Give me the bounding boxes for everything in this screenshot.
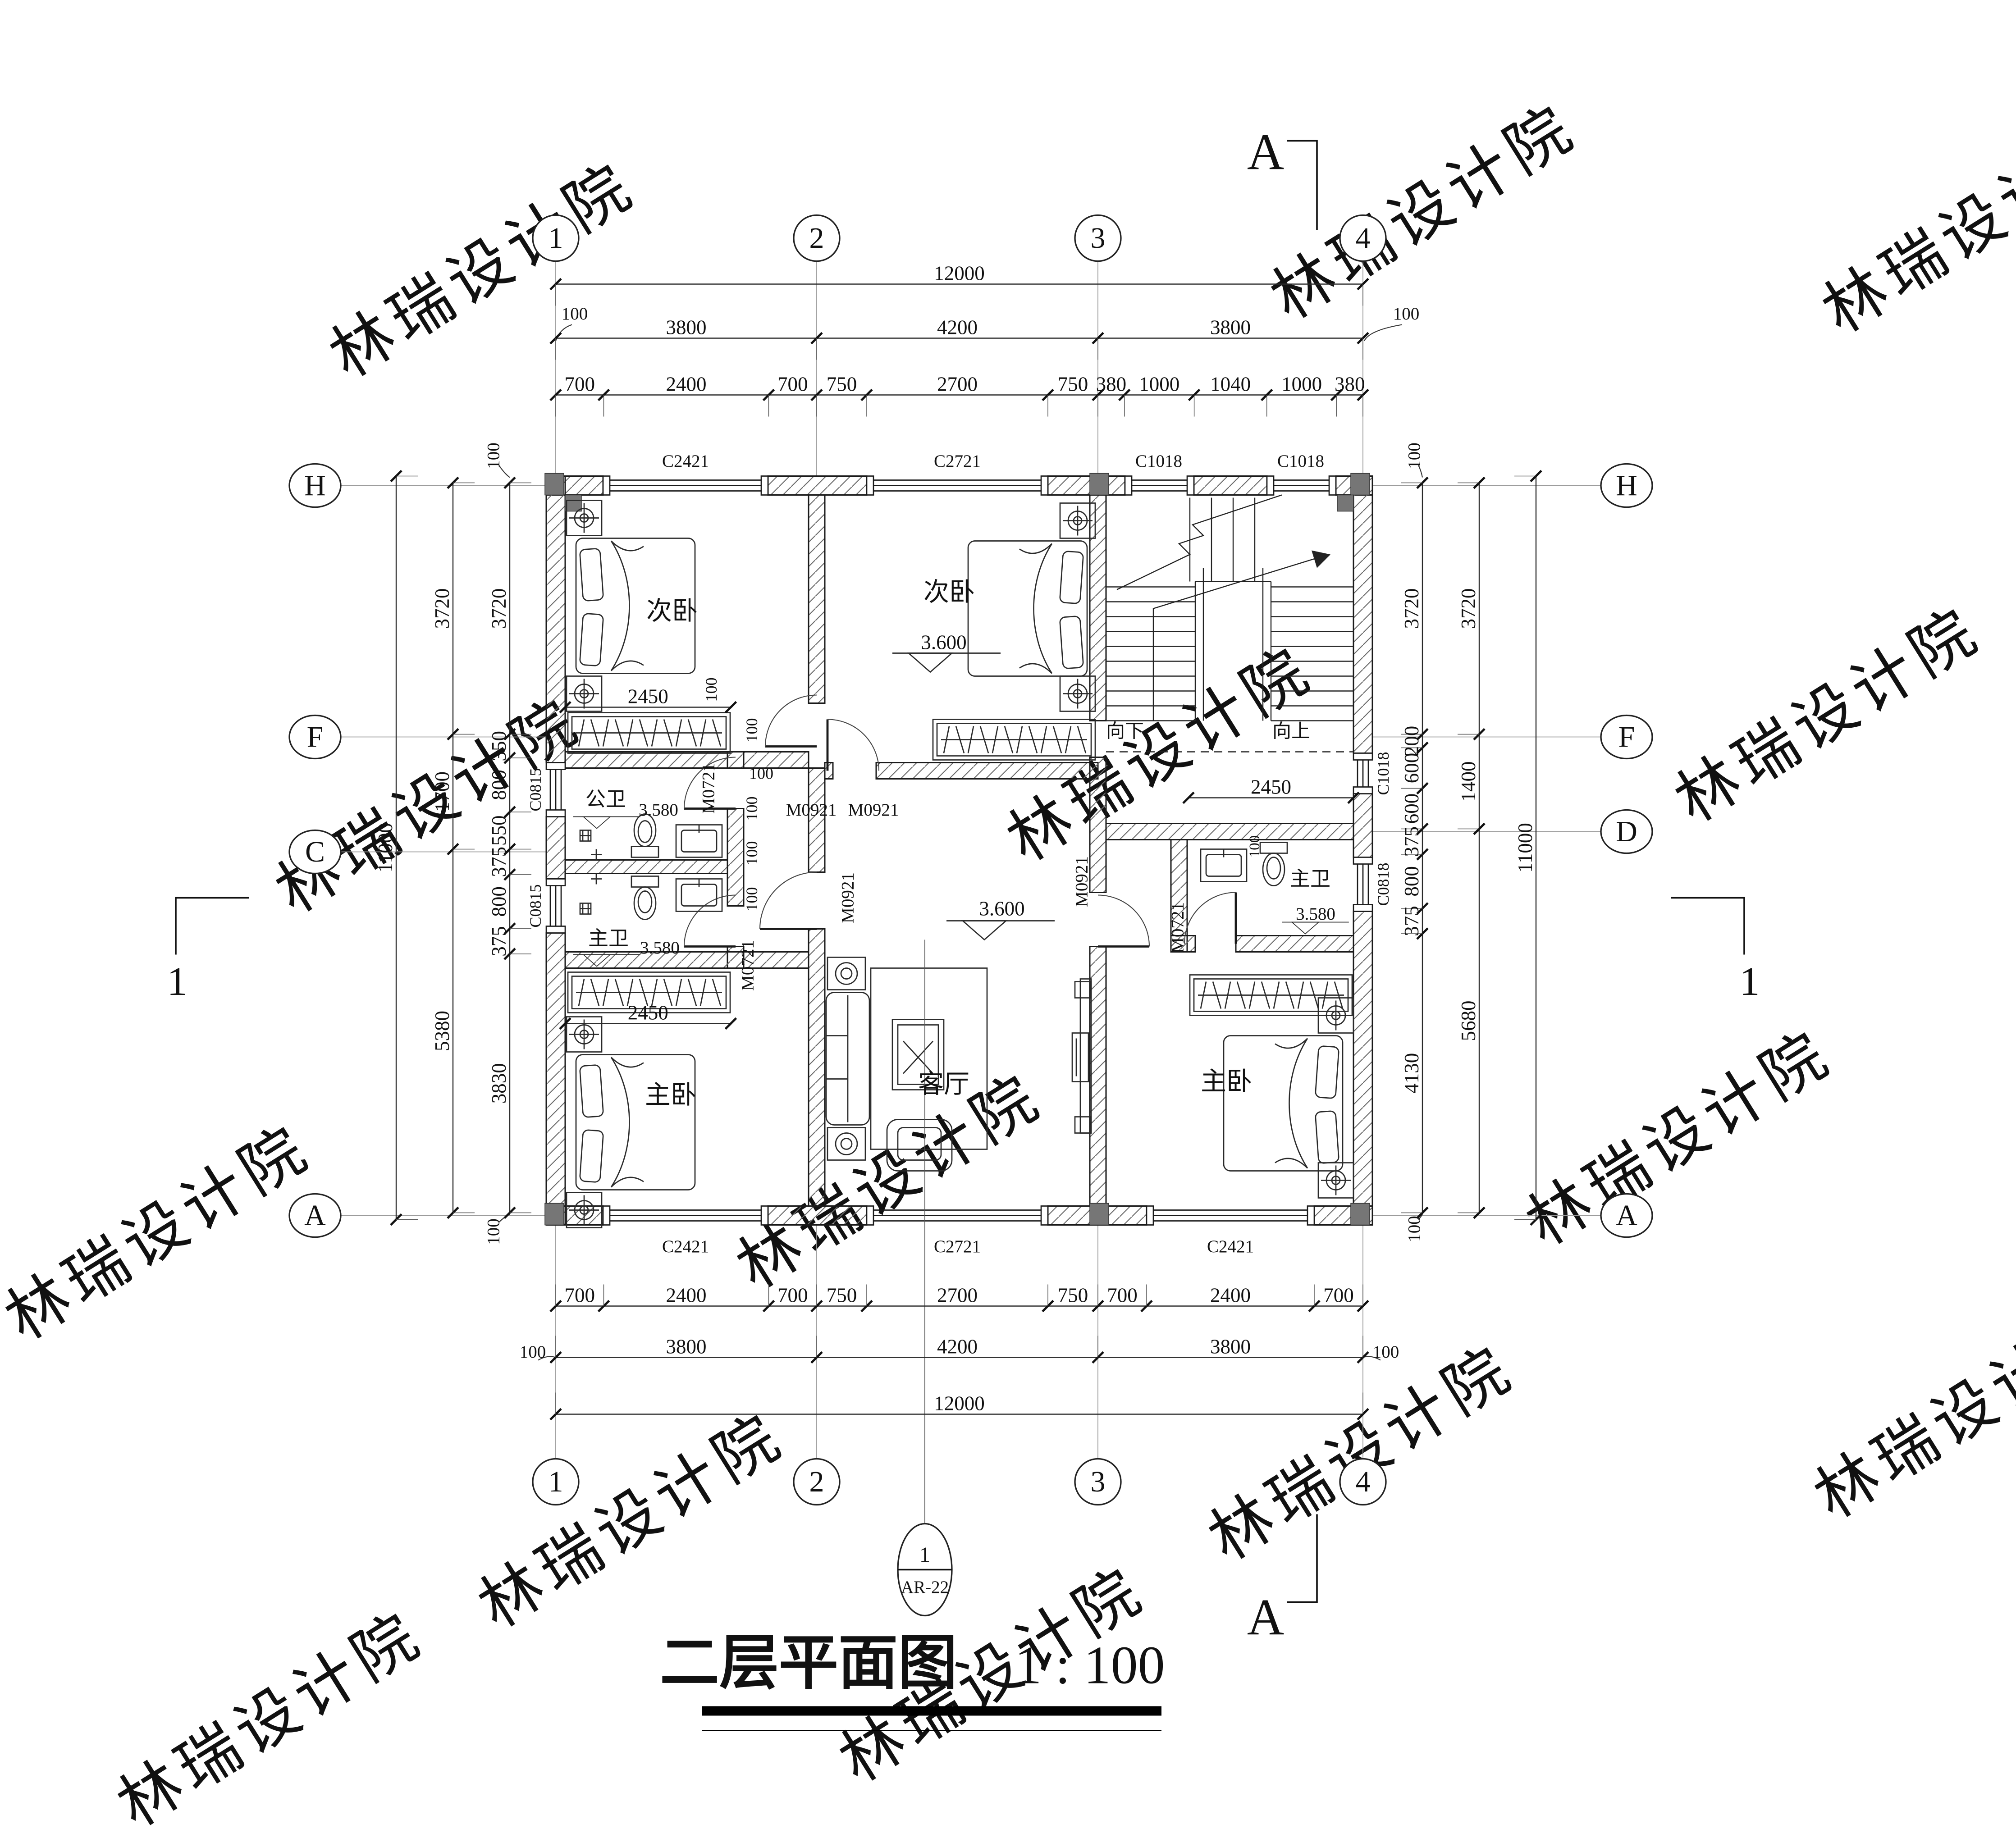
window-label-c2721-top: C2721 [934, 451, 981, 471]
level-symbol-bedroom-mid [892, 653, 1001, 672]
dim-top-row-mid-label-2: 3800 [1210, 316, 1251, 339]
dim-top-row-inner-label-4: 2700 [937, 373, 978, 396]
dim-left-col-inner: 37203508005503758003753830 [488, 478, 531, 1218]
sink-master-bath-right [1201, 849, 1247, 882]
section-line-A-top [1287, 141, 1317, 230]
dim-left-col-mid: 372017005380 [431, 478, 475, 1218]
stair-label-down: 向下 [1106, 721, 1144, 742]
window-label-c0815-2: C0815 [526, 884, 544, 927]
door-label-m0721-1: M0721 [699, 763, 718, 814]
dim-interior-100-2: 100 [749, 765, 773, 783]
window-label-c0818-right: C0818 [1374, 862, 1392, 906]
dim-interior-100-6: 100 [743, 887, 761, 912]
dim-left-col-mid-label-0: 3720 [431, 588, 453, 629]
watermark-7: 林瑞设计院 [725, 1061, 1054, 1302]
watermark-layer: 林瑞设计院林瑞设计院林瑞设计院林瑞设计院林瑞设计院林瑞设计院林瑞设计院林瑞设计院… [0, 92, 2016, 1840]
grid-bubble-right-D: D [1616, 815, 1637, 848]
dim-top-row-overall-label-0: 12000 [934, 262, 985, 285]
dim-top-row-overall: 12000 [550, 262, 1368, 306]
dim-bottom-row-overall-label-0: 12000 [934, 1392, 985, 1415]
dim-offset-100-top-left: 100 [562, 304, 588, 324]
room-label-living: 客厅 [918, 1070, 969, 1099]
dim-stair-hall: 2450 [1183, 776, 1359, 803]
toilet-master-bath-left [631, 876, 658, 920]
section-line-1-right [1671, 898, 1744, 955]
level-master-bath-left: 3.580 [640, 938, 680, 958]
section-marker-1-left: 1 [167, 959, 187, 1004]
dim-offset-100-top-right: 100 [1393, 304, 1420, 324]
dim-top-row-inner-label-2: 700 [777, 373, 808, 396]
watermark-12: 林瑞设计院 [106, 1599, 435, 1840]
dim-stair-hall-label-0: 2450 [1251, 776, 1291, 798]
grid-bubble-top-1: 1 [549, 222, 563, 255]
dim-left-col-inner-label-1: 350 [488, 731, 510, 762]
dim-right-col-inner-label-1: 200 [1400, 726, 1423, 757]
dim-bottom-row-inner-label-1: 2400 [666, 1284, 707, 1307]
window-c1018-top-1 [1125, 476, 1194, 495]
dim-bottom-row-inner-label-5: 750 [1058, 1284, 1088, 1307]
floor-plan-sheet: 林瑞设计院林瑞设计院林瑞设计院林瑞设计院林瑞设计院林瑞设计院林瑞设计院林瑞设计院… [0, 0, 2016, 1847]
level-living: 3.600 [979, 898, 1024, 920]
grid-bubble-bottom-3: 3 [1091, 1465, 1106, 1498]
dim-left-col-overall-label-0: 11000 [374, 823, 397, 873]
dim-top-row-inner-label-3: 750 [827, 373, 857, 396]
watermark-10: 林瑞设计院 [1197, 1333, 1526, 1574]
dim-top-row-inner-label-10: 380 [1335, 373, 1365, 396]
window-label-c1018-top-2: C1018 [1277, 451, 1324, 471]
door-m0921-bedroom-lower-left [760, 872, 817, 929]
dim-right-col-inner-label-3: 600 [1400, 794, 1423, 824]
grid-bubble-bottom-2: 2 [809, 1465, 824, 1498]
dim-right-col-inner-label-5: 800 [1400, 866, 1423, 897]
section-marker-A-top: A [1247, 123, 1284, 180]
window-label-c2421-bottom-2: C2421 [1207, 1237, 1254, 1256]
section-marker-A-bottom: A [1247, 1588, 1284, 1646]
dim-top-row-inner-label-5: 750 [1058, 373, 1088, 396]
dim-wardrobe-upper-left-label-0: 2450 [628, 685, 668, 708]
window-c2421-top [603, 476, 768, 495]
window-label-c2421-top: C2421 [662, 451, 709, 471]
room-label-master-bath-right: 主卫 [1290, 868, 1330, 890]
grid-bubble-left-H: H [304, 469, 326, 502]
level-master-bath-right: 3.580 [1296, 904, 1335, 924]
dim-top-row-inner-label-7: 1000 [1139, 373, 1179, 396]
dim-left-col-inner-label-6: 375 [488, 926, 510, 957]
window-c1018-top-2 [1267, 476, 1336, 495]
dim-right-col-mid-label-1: 1400 [1457, 762, 1480, 802]
dim-interior-100-3: 100 [743, 718, 761, 743]
dim-top-row-mid: 380042003800 [550, 316, 1368, 360]
dim-bottom-row-inner-label-8: 700 [1323, 1284, 1354, 1307]
dim-right-col-overall: 11000 [1514, 471, 1541, 1225]
dim-bottom-row-inner-label-3: 750 [827, 1284, 857, 1307]
dim-top-row-inner-label-6: 380 [1096, 373, 1127, 396]
dim-right-col-inner-label-4: 375 [1400, 826, 1423, 857]
level-symbol-master-bath-right [1282, 922, 1349, 934]
dim-top-row-inner-label-0: 700 [565, 373, 595, 396]
window-label-c1018-top-1: C1018 [1135, 451, 1182, 471]
room-label-master-lower-left: 主卧 [645, 1081, 696, 1109]
door-label-m0721-3: M0721 [1168, 902, 1188, 953]
dim-right-col-inner-label-7: 4130 [1400, 1053, 1423, 1094]
sheet-title: 二层平面图 [660, 1630, 957, 1697]
dim-bottom-row-inner: 700240070075027007507002400700 [550, 1284, 1368, 1312]
dim-bottom-row-inner-label-0: 700 [565, 1284, 595, 1307]
watermark-1: 林瑞设计院 [1259, 92, 1588, 333]
toilet-master-bath-right [1260, 843, 1287, 886]
door-label-m0921-1: M0921 [786, 800, 837, 820]
dim-right-col-overall-label-0: 11000 [1514, 823, 1536, 873]
bed-lower-left [576, 1055, 695, 1190]
window-c2421-bottom-1 [603, 1206, 768, 1225]
window-c2421-bottom-2 [1147, 1206, 1314, 1225]
window-label-c2721-bottom: C2721 [934, 1237, 981, 1256]
dim-left-col-mid-label-2: 5380 [431, 1011, 453, 1051]
side-table-plant-1 [827, 958, 865, 990]
dim-offset-100-left-top: 100 [484, 442, 503, 469]
door-m0921-bedroom-upper-mid [827, 720, 879, 771]
floor-plan-drawing: 林瑞设计院林瑞设计院林瑞设计院林瑞设计院林瑞设计院林瑞设计院林瑞设计院林瑞设计院… [0, 0, 2016, 1847]
dim-offset-100-right-bottom: 100 [1405, 1216, 1424, 1242]
coffee-table-decor [903, 1041, 933, 1074]
dim-interior-100-5: 100 [743, 841, 761, 866]
grid-bubble-top-3: 3 [1091, 222, 1106, 255]
watermark-9: 林瑞设计院 [467, 1400, 796, 1642]
window-label-c2421-bottom-1: C2421 [662, 1237, 709, 1256]
dim-bottom-row-mid-label-1: 4200 [937, 1336, 978, 1358]
room-label-bedroom2-upper-mid: 次卧 [923, 578, 975, 607]
dim-left-col-mid-label-1: 1700 [431, 771, 453, 812]
window-c0818-right [1353, 857, 1372, 912]
dim-interior-100-4: 100 [743, 797, 761, 821]
bed-upper-mid [968, 541, 1087, 676]
bed-lower-right [1224, 1036, 1343, 1171]
section-line-1-left [176, 898, 249, 955]
grid-bubble-right-A: A [1616, 1199, 1637, 1232]
room-label-bedroom2-upper-left: 次卧 [646, 597, 698, 625]
dim-bottom-row-mid: 380042003800 [550, 1336, 1368, 1363]
window-label-c1018-right: C1018 [1374, 752, 1392, 795]
grid-bubble-right-H: H [1616, 469, 1637, 502]
window-label-c0815-1: C0815 [526, 768, 544, 811]
dim-bottom-row-inner-label-4: 2700 [937, 1284, 978, 1307]
grid-bubble-top-4: 4 [1356, 222, 1371, 255]
dim-right-col-inner: 37202006006003758003754130 [1400, 478, 1428, 1218]
dim-wardrobe-lower-left-label-0: 2450 [628, 1002, 668, 1024]
dim-right-col-mid: 372014005680 [1457, 478, 1485, 1218]
room-label-public-bath: 公卫 [585, 788, 626, 811]
level-symbol-living [946, 921, 1055, 940]
dim-left-col-inner-label-7: 3830 [488, 1063, 510, 1104]
watermark-2: 林瑞设计院 [1811, 105, 2016, 347]
detail-bubble-number: 1 [919, 1543, 930, 1567]
grid-bubble-left-C: C [305, 835, 325, 868]
dim-left-col-inner-label-3: 550 [488, 816, 510, 846]
dim-right-col-inner-label-0: 3720 [1400, 588, 1423, 629]
door-label-m0921-2: M0921 [848, 800, 899, 820]
dim-right-col-inner-label-6: 375 [1400, 906, 1423, 936]
window-c2721-top [867, 476, 1048, 495]
grid-bubble-right-F: F [1618, 721, 1635, 753]
dim-top-row-inner-label-1: 2400 [666, 373, 707, 396]
door-label-m0921-4: M0921 [1072, 856, 1092, 907]
dim-right-col-mid-label-0: 3720 [1457, 588, 1480, 629]
dim-offset-100-bottom-left: 100 [520, 1342, 546, 1362]
door-label-m0721-2: M0721 [738, 940, 758, 991]
title-underline-thick [702, 1706, 1161, 1716]
dim-bottom-row-inner-label-2: 700 [777, 1284, 808, 1307]
grid-bubble-left-F: F [307, 721, 324, 753]
dim-top-row-inner-label-8: 1040 [1210, 373, 1251, 396]
wardrobe-upper-left [568, 713, 730, 753]
door-label-m0921-3: M0921 [838, 872, 858, 923]
wardrobe-lower-right [1190, 975, 1352, 1016]
sink-master-bath-left [676, 879, 722, 912]
stair-arrow-head [1312, 551, 1330, 568]
side-table-plant-2 [827, 1128, 865, 1160]
stair-label-up: 向上 [1272, 721, 1310, 742]
stair-break-line [1117, 495, 1282, 590]
dim-left-col-inner-label-0: 3720 [488, 588, 510, 629]
dim-bottom-row-inner-label-7: 2400 [1210, 1284, 1251, 1307]
grid-bubble-top-2: 2 [809, 222, 824, 255]
watermark-6: 林瑞设计院 [0, 1113, 323, 1354]
detail-bubble-sheet: AR-22 [901, 1578, 949, 1597]
room-label-master-bath-left: 主卫 [588, 927, 629, 950]
toilet-public-bath [631, 814, 658, 857]
dim-bottom-row-mid-label-2: 3800 [1210, 1336, 1251, 1358]
dim-bottom-row-overall: 12000 [550, 1392, 1368, 1420]
title-block: 二层平面图 1 : 100 [660, 1630, 1165, 1731]
grid-bubble-bottom-4: 4 [1356, 1465, 1371, 1498]
watermark-8: 林瑞设计院 [1515, 1018, 1844, 1259]
level-symbol-public-bath [573, 817, 640, 829]
window-c1018-right [1353, 753, 1372, 794]
grid-bubble-left-A: A [304, 1199, 326, 1232]
section-marker-1-right: 1 [1740, 959, 1760, 1004]
level-public-bath: 3.580 [639, 800, 678, 820]
grid-bubble-bottom-1: 1 [549, 1465, 563, 1498]
dim-top-row-mid-label-0: 3800 [666, 316, 707, 339]
dim-left-col-inner-label-2: 800 [488, 770, 510, 800]
dim-interior-100-1: 100 [702, 678, 720, 702]
dim-bottom-row-mid-label-0: 3800 [666, 1336, 707, 1358]
watermark-11: 林瑞设计院 [1803, 1291, 2016, 1532]
dim-offset-100-right-top: 100 [1405, 442, 1424, 469]
dim-interior-100-7: 100 [1247, 835, 1263, 858]
dim-right-col-inner-label-2: 600 [1400, 753, 1423, 784]
room-label-master-lower-right: 主卧 [1201, 1067, 1252, 1096]
sink-public-bath [676, 825, 722, 857]
watermark-0: 林瑞设计院 [318, 150, 647, 391]
dim-top-row-inner-label-9: 1000 [1281, 373, 1322, 396]
level-bedroom2-upper-mid: 3.600 [921, 631, 966, 654]
grid-lines [338, 261, 1604, 1459]
sheet-scale: 1 : 100 [1015, 1635, 1165, 1695]
wardrobe-upper-mid [933, 720, 1095, 760]
door-m0921-bedroom-lower-right [1098, 895, 1149, 947]
dim-bottom-row-inner-label-6: 700 [1107, 1284, 1138, 1307]
dim-top-row-mid-label-1: 4200 [937, 316, 978, 339]
window-c0815-2 [546, 879, 565, 933]
dim-offset-100-left-bottom: 100 [484, 1218, 503, 1245]
dim-right-col-mid-label-2: 5680 [1457, 1001, 1480, 1041]
dim-left-col-inner-label-4: 375 [488, 847, 510, 877]
dim-offset-100-bottom-right: 100 [1373, 1342, 1399, 1362]
dim-top-row-inner: 70024007007502700750380100010401000380 [550, 373, 1368, 417]
dim-left-col-inner-label-5: 800 [488, 886, 510, 917]
watermark-5: 林瑞设计院 [1664, 595, 1993, 836]
